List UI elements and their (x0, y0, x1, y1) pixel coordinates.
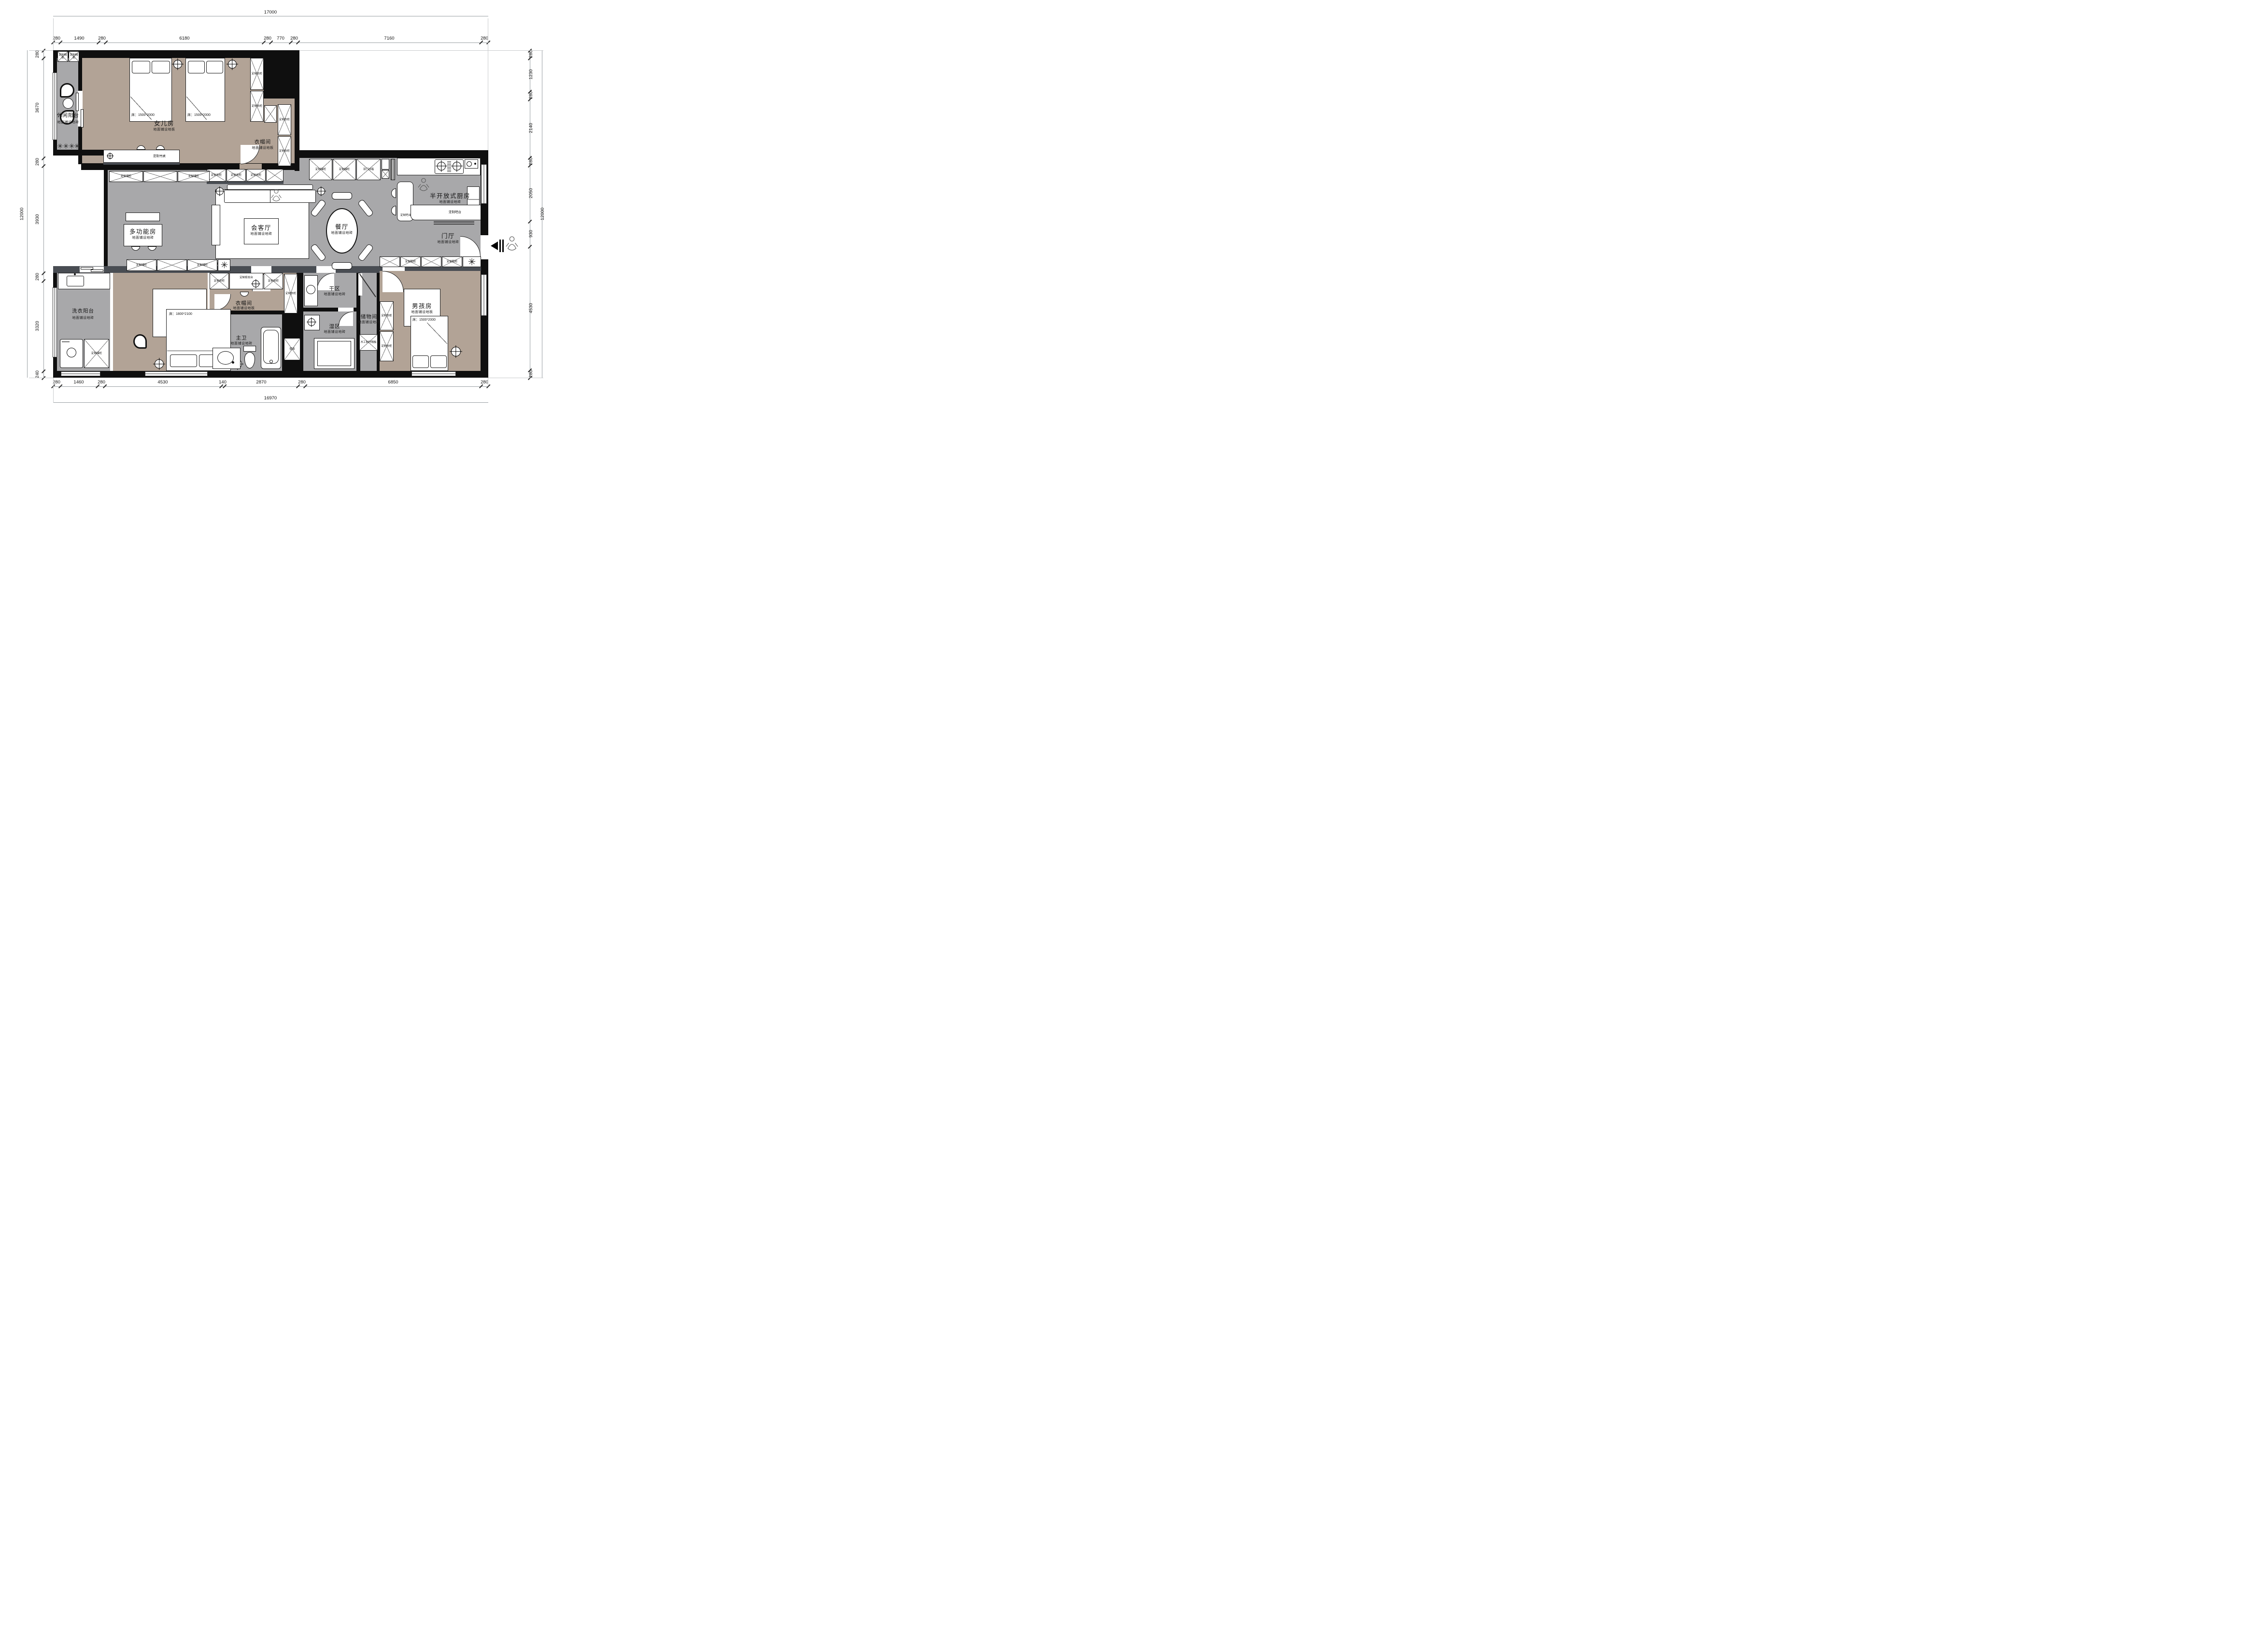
cloak-top-wardrobe-2: 定制衣柜 (250, 91, 264, 122)
dim-left-s0: 280 (35, 44, 41, 64)
dim-line-left-total (27, 50, 28, 378)
room-floor-bath: 地面铺设地砖 (227, 342, 256, 346)
cloak-top-wardrobe-3: 定制衣柜 (278, 104, 291, 135)
dim-bottom-s5: 2870 (252, 380, 271, 385)
coffee-table (244, 218, 279, 244)
dining-chair-n (332, 192, 352, 199)
living-wardrobe-4 (266, 169, 283, 182)
dim-bottom-s3: 4530 (153, 380, 172, 385)
wall-top (53, 50, 299, 58)
dim-left-s3: 3930 (35, 210, 41, 229)
wall-rightwing-top (299, 150, 488, 158)
daughter-bed-size-2: 床：1500*2000 (187, 113, 221, 118)
dim-bottom-total: 16970 (256, 396, 285, 401)
wall-leftwing-east (295, 99, 299, 171)
dim-top-s3: 6180 (175, 36, 194, 42)
dim-left-s2: 280 (35, 152, 41, 171)
door-wet-gap (338, 308, 354, 311)
dining-cab-1: 定制储柜 (309, 159, 332, 180)
dim-right-s8: 280 (528, 364, 534, 383)
balcony-chair-1 (60, 83, 74, 98)
room-floor-wet: 地面铺设地砖 (320, 330, 349, 334)
dim-bottom-s8: 280 (475, 380, 494, 385)
corridor-cab-1: 定制储柜 (127, 259, 156, 271)
balcony-table (63, 98, 73, 109)
room-floor-multi: 地面铺设地砖 (121, 236, 165, 241)
room-label-laundry: 洗衣阳台 (67, 308, 99, 315)
dim-bottom-s6: 280 (292, 380, 312, 385)
boy-bed-size: 床：1500*2000 (412, 318, 447, 323)
cloak2-wardrobe-1: 定制衣柜 (210, 273, 229, 289)
dim-top-s0: 280 (47, 36, 66, 42)
plant-icon (74, 143, 80, 149)
room-label-cloak2: 衣帽间 (229, 300, 258, 307)
dim-right-s0: 280 (528, 44, 534, 64)
daughter-bed-size: 床：1500*2000 (131, 113, 165, 118)
dim-top-total: 17000 (256, 10, 285, 15)
room-floor-dry: 地面铺设地砖 (320, 293, 349, 297)
window-kitchen-east (481, 164, 487, 204)
niche-box: 壁龛 (284, 338, 300, 360)
foyer-mat (434, 221, 474, 225)
dim-right-s1: 1230 (528, 65, 534, 84)
bar-label-1: 定制吧台 (398, 213, 413, 217)
dim-bottom-s7: 6850 (383, 380, 403, 385)
window-boy-east (481, 274, 487, 316)
cloak2-wardrobe-2: 定制衣柜 (264, 273, 283, 289)
master-bed-size: 床：1800*2100 (169, 312, 206, 317)
laundry-storage-cab: 定制储柜 (84, 339, 109, 368)
room-label-wet: 湿区 (323, 324, 347, 330)
living-wardrobe-2: 定制衣柜 (227, 169, 246, 182)
sofa-side-table-2 (317, 187, 325, 195)
cabinet-balcony-2: 定制储柜 (69, 51, 79, 62)
dim-left-total: 12000 (19, 199, 25, 228)
multi-shelf (126, 212, 160, 221)
room-floor-cloak-top: 地面铺设地板 (248, 146, 277, 150)
room-label-bath: 主卫 (227, 335, 256, 341)
person-icon (416, 177, 431, 193)
multi-table (124, 224, 162, 246)
bar-label-2: 定制吧台 (445, 210, 465, 214)
corridor-cab-2 (157, 259, 187, 271)
shoe-box-1 (380, 256, 400, 267)
dining-screen (391, 159, 395, 180)
window-laundry-south (61, 371, 100, 376)
room-floor-foyer: 地面铺设地砖 (429, 240, 468, 245)
dim-top-s6: 280 (284, 36, 304, 42)
multi-cab-3: 定制储柜 (178, 171, 210, 182)
room-floor-living: 地面铺设地砖 (240, 232, 283, 237)
window-laundry-west (53, 287, 57, 357)
boy-wardrobe-2: 定制衣柜 (380, 331, 394, 361)
dim-right-total: 12000 (540, 199, 546, 228)
multi-cab-2 (143, 171, 177, 182)
laundry-sink (67, 276, 84, 286)
dim-right-s2: 280 (528, 85, 534, 105)
dim-right-s7: 4530 (528, 298, 534, 318)
dim-top-s1: 1490 (70, 36, 89, 42)
cloak-top-wardrobe-1: 定制衣柜 (250, 58, 264, 90)
storage-partition: 木工制作隔板 (359, 334, 378, 351)
entry-arrow-icon (491, 241, 498, 250)
living-wardrobe-3: 定制衣柜 (246, 169, 266, 182)
dim-line-bottom-chain (53, 386, 488, 387)
room-floor-dining: 地面铺设地砖 (323, 231, 361, 236)
cloak-top-wardrobe-4: 定制衣柜 (278, 136, 291, 166)
room-floor-leisure-balcony: 地面铺设地砖 (52, 120, 84, 125)
multi-cab-1: 定制储柜 (109, 171, 143, 182)
entry-door-gap (481, 235, 488, 259)
dim-right-s6: 930 (528, 224, 534, 243)
dim-bottom-s1: 1460 (69, 380, 88, 385)
dim-left-s5: 3320 (35, 316, 41, 336)
dim-right-s4: 280 (528, 152, 534, 171)
wall-dry-west-spine (297, 273, 303, 316)
dining-chair-s (332, 262, 352, 269)
room-floor-daughter: 地面铺设地板 (145, 127, 184, 132)
room-label-leisure-balcony: 休闲阳台 (52, 113, 84, 119)
bedside-target-1 (173, 60, 182, 69)
floor-plan: 17000 280 1490 280 6180 280 770 280 7160… (0, 0, 567, 407)
dim-line-left-chain (43, 50, 44, 378)
room-label-multi: 多功能房 (121, 228, 165, 235)
dim-right-s3: 2140 (528, 118, 534, 138)
boy-bedside (451, 347, 461, 356)
dim-top-s7: 7160 (380, 36, 399, 42)
person-icon (505, 235, 519, 253)
dim-top-s8: 280 (475, 36, 494, 42)
room-label-foyer: 门厅 (431, 232, 465, 240)
room-label-boy: 男孩房 (402, 302, 442, 310)
room-floor-laundry: 地面铺设地砖 (67, 316, 99, 321)
room-floor-boy: 地面铺设地板 (402, 310, 442, 315)
boy-wardrobe-1: 定制衣柜 (380, 301, 394, 330)
dining-cab-2: 定制储柜 (333, 159, 356, 180)
dim-bottom-s0: 280 (47, 380, 66, 385)
person-icon (270, 187, 282, 204)
dim-line-bottom-total (53, 402, 488, 403)
corridor-cab-3: 定制储柜 (187, 259, 217, 271)
dim-left-s6: 240 (35, 365, 41, 384)
cloak-top-box (264, 105, 277, 123)
plant-icon (468, 257, 476, 266)
room-label-daughter: 女儿房 (145, 120, 184, 127)
desk-label: 定制书桌 (145, 154, 174, 158)
tv-bench (212, 205, 220, 245)
wall-void-ne (264, 50, 299, 99)
shoe-box-3 (421, 256, 441, 267)
window-master-south (145, 371, 208, 376)
dim-top-s2: 280 (92, 36, 112, 42)
laundry-counter (58, 273, 110, 289)
master-bedside-1 (155, 359, 164, 368)
master-chair (133, 334, 147, 349)
dim-left-s4: 280 (35, 267, 41, 286)
room-floor-kitchen: 地面铺设地砖 (428, 200, 472, 205)
room-label-dry: 干区 (323, 286, 347, 292)
window-boy-south (411, 371, 456, 376)
room-floor-cloak2: 地面铺设地板 (229, 307, 258, 311)
dim-bottom-s2: 280 (92, 380, 111, 385)
room-label-kitchen: 半开放式厨房 (425, 192, 475, 199)
bedside-target-2 (228, 60, 237, 69)
dresser-stool (252, 280, 259, 287)
room-label-storage: 储物间 (354, 314, 383, 320)
plant-icon (220, 261, 228, 269)
sofa-back (227, 184, 313, 190)
wall-balcony-bottom (53, 150, 107, 156)
sofa-seat (224, 190, 316, 203)
wall-mid-west (104, 154, 108, 269)
room-label-dining: 餐厅 (325, 223, 359, 230)
living-wardrobe-1: 定制衣柜 (207, 169, 226, 182)
room-label-living: 会客厅 (240, 224, 283, 231)
cabinet-balcony-1: 定制储柜 (57, 51, 68, 62)
toilet (243, 346, 256, 352)
dim-right-s5: 2050 (528, 184, 534, 203)
room-floor-storage: 地面铺设地砖 (354, 321, 383, 325)
dim-line-top-total (53, 16, 488, 16)
room-label-cloak-top: 衣帽间 (248, 139, 277, 145)
door-boy-gap (383, 267, 405, 271)
shoe-box-4: 定制鞋柜 (442, 256, 462, 267)
wall-shoe-accent (358, 266, 380, 273)
shoe-box-2: 定制鞋柜 (400, 256, 421, 267)
dim-left-s1: 3670 (35, 98, 41, 117)
window-balcony-west (53, 72, 57, 140)
door-master-gap (251, 266, 271, 273)
cloak2-wardrobe-3: 定制衣柜 (284, 274, 298, 313)
fridge-box: 双门冰箱 (356, 159, 381, 180)
sofa-side-table-1 (216, 187, 224, 195)
